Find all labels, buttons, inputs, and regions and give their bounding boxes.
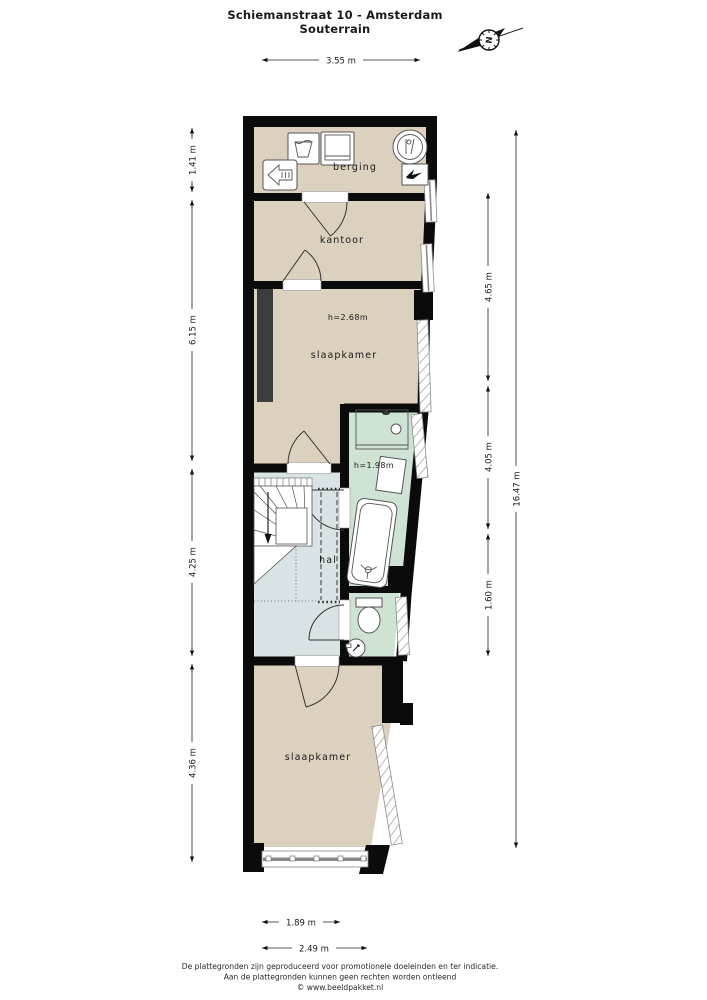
room-label-slaapkamer-1: slaapkamer	[311, 350, 377, 361]
page-title-floor: Souterrain	[300, 22, 371, 36]
dim-label-bottom-2: 2.49 m	[299, 945, 329, 955]
dim-label-right-3: 1.60 m	[485, 580, 495, 610]
dim-left-slaapkamer-2: 4.36 m	[186, 664, 199, 862]
dim-label-right-1: 4.65 m	[485, 272, 495, 302]
dim-top-width: 3.55 m	[262, 54, 420, 67]
dim-label-right-2: 4.05 m	[485, 442, 495, 472]
wall-corner-bottom-left	[243, 843, 264, 872]
dim-label-left-1: 1.41 m	[189, 145, 199, 175]
room-label-slaapkamer-2: slaapkamer	[285, 752, 351, 763]
dim-label-bottom-1: 1.89 m	[286, 919, 316, 929]
dim-right-lower: 1.60 m	[482, 534, 495, 656]
dim-left-kantoor-slaapkamer: 6.15 m	[186, 200, 199, 461]
dryer-icon	[321, 132, 354, 165]
room-label-hal: hal	[319, 555, 337, 566]
toilet	[356, 598, 382, 633]
window-bottom	[262, 851, 368, 867]
dim-bottom-outer: 2.49 m	[262, 942, 367, 955]
dim-label-top: 3.55 m	[326, 57, 356, 67]
room-label-kantoor: kantoor	[320, 235, 364, 246]
window-kantoor	[424, 180, 437, 222]
dim-left-hal: 4.25 m	[186, 469, 199, 656]
meter-icon	[402, 164, 428, 185]
boiler-icon	[393, 130, 427, 164]
ceiling-height-badkamer: h=1.98m	[354, 461, 394, 470]
wall-block-right-1	[414, 290, 433, 320]
dim-left-berging: 1.41 m	[186, 128, 199, 192]
north-compass-icon: N	[457, 28, 523, 52]
footer-line-2: Aan de plattegronden kunnen geen rechten…	[224, 973, 457, 982]
room-label-berging: berging	[333, 162, 377, 173]
dim-right-middle: 4.05 m	[482, 386, 495, 529]
footer-line-3: © www.beeldpakket.nl	[297, 983, 383, 992]
dim-label-right-total: 16.47 m	[513, 471, 523, 506]
dim-label-left-4: 4.36 m	[189, 748, 199, 778]
floorplan-page: Schiemanstraat 10 - Amsterdam Souterrain…	[0, 0, 707, 1000]
footer-disclaimer: De plattegronden zijn geproduceerd voor …	[182, 962, 499, 992]
floorplan-canvas: Schiemanstraat 10 - Amsterdam Souterrain…	[0, 0, 707, 1000]
washing-machine-icon	[288, 133, 319, 164]
footer-line-1: De plattegronden zijn geproduceerd voor …	[182, 962, 499, 971]
dim-bottom-inner: 1.89 m	[262, 916, 340, 929]
window-slaapkamer-1	[421, 244, 434, 293]
wall-block-notch	[382, 657, 403, 723]
dim-right-upper: 4.65 m	[482, 193, 495, 381]
ceiling-height-slaapkamer-1: h=2.68m	[328, 313, 368, 322]
closet-block	[257, 289, 273, 402]
wall-block-bath-toilet	[388, 566, 405, 593]
wall-block-notch-out	[400, 703, 413, 725]
dim-label-left-3: 4.25 m	[189, 547, 199, 577]
page-title-address: Schiemanstraat 10 - Amsterdam	[227, 8, 442, 22]
compass-north-label: N	[482, 36, 493, 44]
ventilation-unit-icon	[263, 160, 297, 190]
dim-right-total: 16.47 m	[510, 130, 523, 848]
dim-label-left-2: 6.15 m	[189, 315, 199, 345]
